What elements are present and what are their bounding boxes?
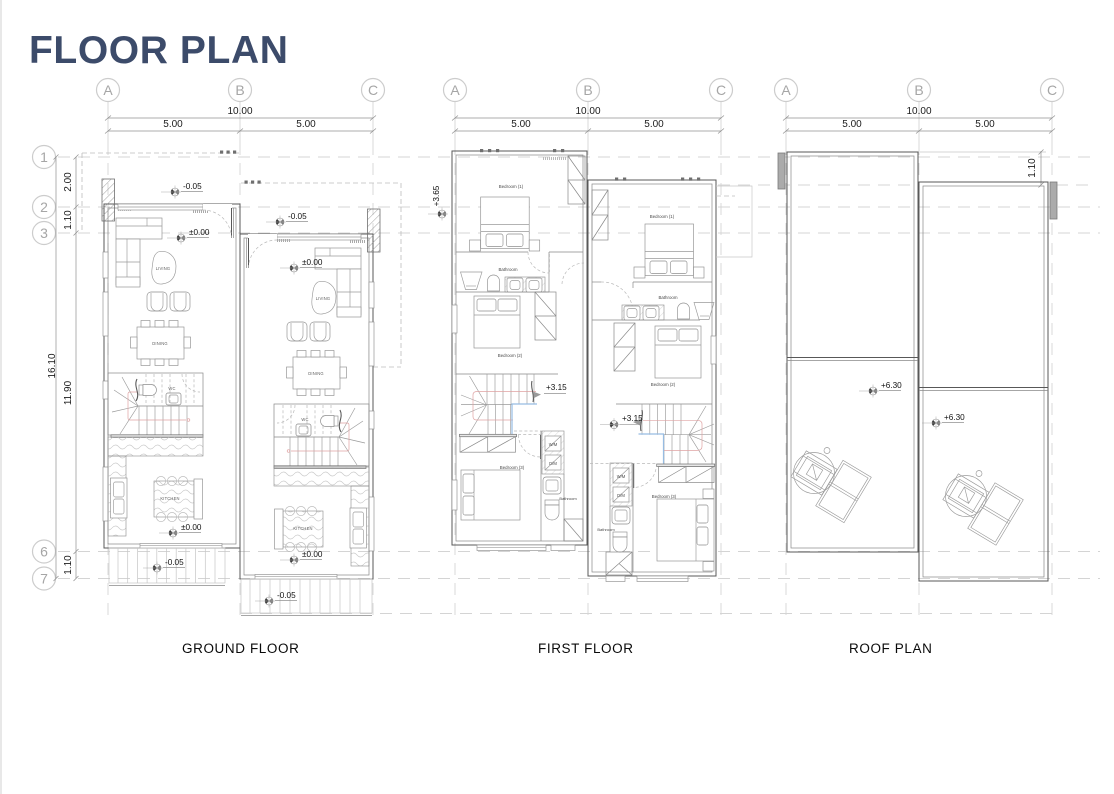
svg-text:-0.05: -0.05 xyxy=(277,591,296,600)
svg-text:3: 3 xyxy=(40,225,48,241)
svg-text:Bathroom: Bathroom xyxy=(658,295,677,300)
svg-text:LIVING: LIVING xyxy=(156,266,171,271)
svg-text:Bedroom (1): Bedroom (1) xyxy=(650,214,675,219)
svg-text:DINING: DINING xyxy=(152,341,168,346)
svg-text:B: B xyxy=(914,82,923,98)
svg-text:A: A xyxy=(103,82,113,98)
svg-text:10.00: 10.00 xyxy=(227,106,252,117)
svg-text:+6.30: +6.30 xyxy=(944,413,965,422)
svg-text:-0.05: -0.05 xyxy=(165,558,184,567)
svg-text:±0.00: ±0.00 xyxy=(302,550,323,559)
svg-text:Bedroom (2): Bedroom (2) xyxy=(498,353,523,358)
svg-text:Bedroom (1): Bedroom (1) xyxy=(499,184,524,189)
svg-text:KITCHEN: KITCHEN xyxy=(160,496,179,501)
svg-text:1.10: 1.10 xyxy=(63,210,74,230)
svg-text:2.00: 2.00 xyxy=(63,172,74,192)
svg-text:+6.30: +6.30 xyxy=(881,381,902,390)
svg-text:+3.15: +3.15 xyxy=(622,414,643,423)
svg-text:Bathroom: Bathroom xyxy=(597,527,615,532)
svg-text:2: 2 xyxy=(40,199,48,215)
svg-text:C: C xyxy=(716,82,726,98)
svg-text:±0.00: ±0.00 xyxy=(189,228,210,237)
svg-text:D/M: D/M xyxy=(617,493,625,498)
svg-text:10.00: 10.00 xyxy=(575,106,600,117)
svg-text:Bathroom: Bathroom xyxy=(498,267,517,272)
svg-text:5.00: 5.00 xyxy=(644,119,664,130)
svg-text:5.00: 5.00 xyxy=(511,119,531,130)
svg-text:A: A xyxy=(781,82,791,98)
svg-text:5.00: 5.00 xyxy=(163,119,183,130)
svg-text:±0.00: ±0.00 xyxy=(181,523,202,532)
svg-text:-0.05: -0.05 xyxy=(183,182,202,191)
svg-text:Bedroom (2): Bedroom (2) xyxy=(651,382,676,387)
svg-text:W/M: W/M xyxy=(549,442,558,447)
svg-text:16.10: 16.10 xyxy=(47,353,58,378)
svg-text:C: C xyxy=(1047,82,1057,98)
svg-text:1.10: 1.10 xyxy=(63,555,74,575)
svg-text:A: A xyxy=(450,82,460,98)
svg-text:1.10: 1.10 xyxy=(1027,158,1038,178)
svg-text:1: 1 xyxy=(40,149,48,165)
svg-text:7: 7 xyxy=(40,571,48,587)
svg-text:-0.05: -0.05 xyxy=(288,212,307,221)
svg-text:11.90: 11.90 xyxy=(63,380,74,405)
svg-text:KITCHEN: KITCHEN xyxy=(293,526,312,531)
svg-text:WC: WC xyxy=(168,386,175,391)
svg-text:DINING: DINING xyxy=(308,371,324,376)
svg-text:C: C xyxy=(368,82,378,98)
svg-text:+3.65: +3.65 xyxy=(432,185,441,206)
svg-text:D/M: D/M xyxy=(549,461,557,466)
svg-text:LIVING: LIVING xyxy=(316,296,331,301)
svg-text:Bedroom (3): Bedroom (3) xyxy=(500,465,525,470)
svg-text:10.00: 10.00 xyxy=(906,106,931,117)
svg-text:5.00: 5.00 xyxy=(975,119,995,130)
svg-text:6: 6 xyxy=(40,544,48,560)
svg-text:WC: WC xyxy=(301,417,308,422)
svg-text:5.00: 5.00 xyxy=(296,119,316,130)
svg-text:Bathroom: Bathroom xyxy=(559,496,577,501)
svg-text:±0.00: ±0.00 xyxy=(302,258,323,267)
svg-text:Bedroom (3): Bedroom (3) xyxy=(652,494,677,499)
svg-text:+3.15: +3.15 xyxy=(546,383,567,392)
svg-text:B: B xyxy=(583,82,592,98)
svg-text:B: B xyxy=(235,82,244,98)
svg-text:5.00: 5.00 xyxy=(842,119,862,130)
svg-text:W/M: W/M xyxy=(617,474,626,479)
